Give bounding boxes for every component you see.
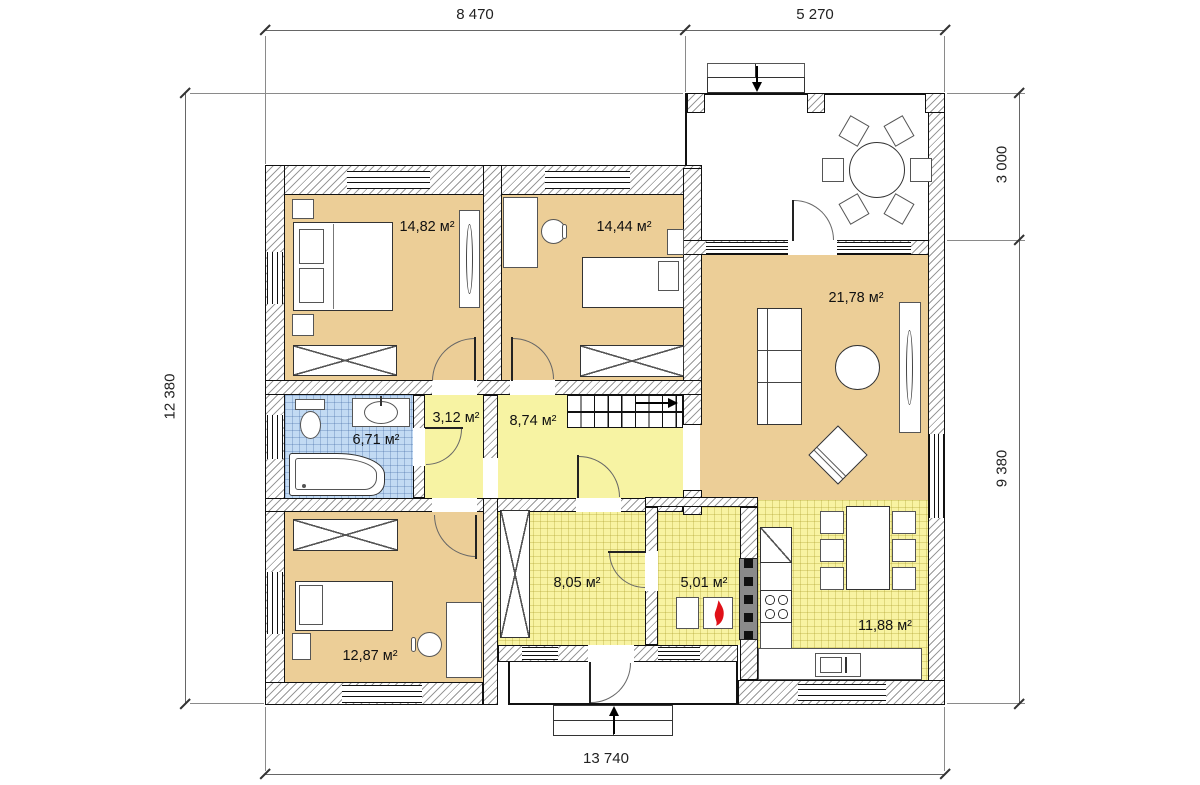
toilet-bowl	[300, 411, 321, 439]
door-leaf	[474, 337, 476, 381]
dining-chair	[892, 567, 916, 590]
wardrobe	[293, 345, 397, 376]
toilet-tank	[295, 399, 325, 410]
extension-line	[944, 36, 945, 92]
faucet-icon	[380, 396, 382, 406]
chair-back	[411, 637, 416, 652]
window	[267, 415, 283, 459]
room-label-entry: 8,05 м²	[553, 575, 600, 591]
terrace-chair	[910, 158, 932, 182]
dining-chair	[820, 567, 844, 590]
wall-segment	[483, 165, 502, 395]
nightstand	[667, 229, 684, 255]
nightstand	[292, 314, 314, 336]
wall-segment	[265, 380, 702, 395]
terrace-pier	[925, 93, 945, 113]
room-label-kitchen: 11,88 м²	[858, 618, 912, 634]
dim-label-right-terrace: 3 000	[994, 115, 1011, 215]
dimension-line-right	[1019, 93, 1020, 704]
door-opening	[413, 428, 425, 466]
dining-chair	[820, 539, 844, 562]
faucet-icon	[845, 657, 847, 673]
extension-line	[190, 93, 683, 94]
dimension-line-left	[185, 93, 186, 704]
door-opening	[510, 380, 555, 395]
dining-chair	[892, 539, 916, 562]
dimension-line-bottom	[265, 774, 945, 775]
extension-line	[944, 707, 945, 771]
dining-chair	[820, 511, 844, 534]
chair-back	[562, 224, 567, 239]
door-leaf	[511, 337, 513, 381]
window	[929, 434, 944, 518]
door-leaf	[577, 455, 579, 498]
door-leaf	[589, 662, 591, 703]
room-label-bedroom-2: 14,44 м²	[596, 219, 651, 235]
window	[522, 647, 558, 660]
blanket-line	[333, 224, 334, 309]
room-label-living: 21,78 м²	[828, 290, 883, 306]
desk-chair	[417, 632, 442, 657]
room-label-corridor: 3,12 м²	[432, 410, 479, 426]
door-leaf	[425, 427, 463, 429]
terrace-pier	[687, 93, 705, 113]
round-dining-table	[849, 142, 905, 198]
window	[798, 684, 886, 701]
door-opening	[588, 645, 634, 662]
pillow	[299, 585, 323, 625]
door-opening	[788, 240, 837, 255]
window	[267, 252, 283, 304]
window	[545, 171, 630, 189]
desk	[503, 197, 538, 268]
floor-plan: 14,82 м² 14,44 м² 21,78 м² 6,71 м² 3,12 …	[0, 0, 1200, 785]
extension-line	[947, 240, 1025, 241]
room-label-hall: 8,74 м²	[509, 413, 556, 429]
dining-table	[846, 506, 890, 590]
room-label-bedroom-1: 14,82 м²	[399, 219, 454, 235]
wall-segment	[928, 93, 945, 705]
cabinet	[676, 597, 699, 629]
dim-label-top-main: 8 470	[425, 6, 525, 23]
dining-chair	[892, 511, 916, 534]
extension-line	[685, 36, 686, 92]
window	[347, 171, 430, 189]
room-label-bedroom-3: 12,87 м²	[342, 648, 397, 664]
dim-label-left: 12 380	[162, 347, 179, 447]
drain-icon	[302, 484, 306, 488]
bathtub-inner	[295, 458, 377, 490]
entry-arrow	[613, 714, 615, 734]
terrace-pier	[807, 93, 825, 113]
wardrobe	[580, 345, 684, 377]
window	[267, 572, 283, 634]
coffee-table	[835, 345, 880, 390]
window	[658, 647, 700, 660]
door-leaf	[792, 200, 794, 241]
terrace-chair	[822, 158, 844, 182]
dim-label-bottom: 13 740	[556, 750, 656, 767]
mirror-icon	[466, 224, 473, 294]
dim-label-right-main: 9 380	[994, 419, 1011, 519]
room-label-bathroom: 6,71 м²	[352, 432, 399, 448]
window	[706, 242, 788, 254]
chimney	[739, 558, 758, 640]
door-leaf	[475, 515, 477, 559]
pillow	[299, 229, 324, 264]
nightstand	[292, 633, 311, 660]
wall-segment	[645, 497, 758, 507]
extension-line	[947, 703, 1025, 704]
door-opening	[432, 498, 477, 512]
dimension-line-top	[265, 30, 945, 31]
wardrobe	[500, 510, 530, 638]
pillow	[299, 268, 324, 303]
door-opening	[576, 498, 621, 512]
door-opening	[432, 380, 477, 395]
wardrobe	[293, 519, 398, 551]
window	[837, 242, 911, 254]
arrow-down-icon	[752, 82, 762, 92]
nightstand	[292, 199, 314, 219]
fridge	[760, 527, 792, 563]
dim-label-top-terrace: 5 270	[765, 6, 865, 23]
sofa	[757, 308, 802, 425]
arrow-right-icon	[668, 398, 678, 408]
room-label-boiler: 5,01 м²	[680, 575, 727, 591]
door-opening	[645, 551, 658, 591]
stove	[760, 590, 792, 623]
extension-line	[947, 93, 1025, 94]
arrow-up-icon	[609, 706, 619, 716]
room-living	[700, 255, 928, 500]
staircase-divider	[567, 411, 683, 413]
sink-basin	[820, 657, 842, 673]
flame-icon	[710, 599, 727, 627]
pillow	[658, 261, 679, 291]
tv-icon	[906, 330, 913, 405]
extension-line	[265, 707, 266, 771]
staircase-arrow	[636, 402, 670, 404]
extension-line	[190, 703, 264, 704]
extension-line	[265, 36, 266, 164]
wall-segment	[483, 498, 498, 705]
door-leaf	[608, 551, 646, 553]
desk	[446, 602, 482, 678]
door-opening	[483, 458, 498, 498]
window	[342, 685, 422, 703]
